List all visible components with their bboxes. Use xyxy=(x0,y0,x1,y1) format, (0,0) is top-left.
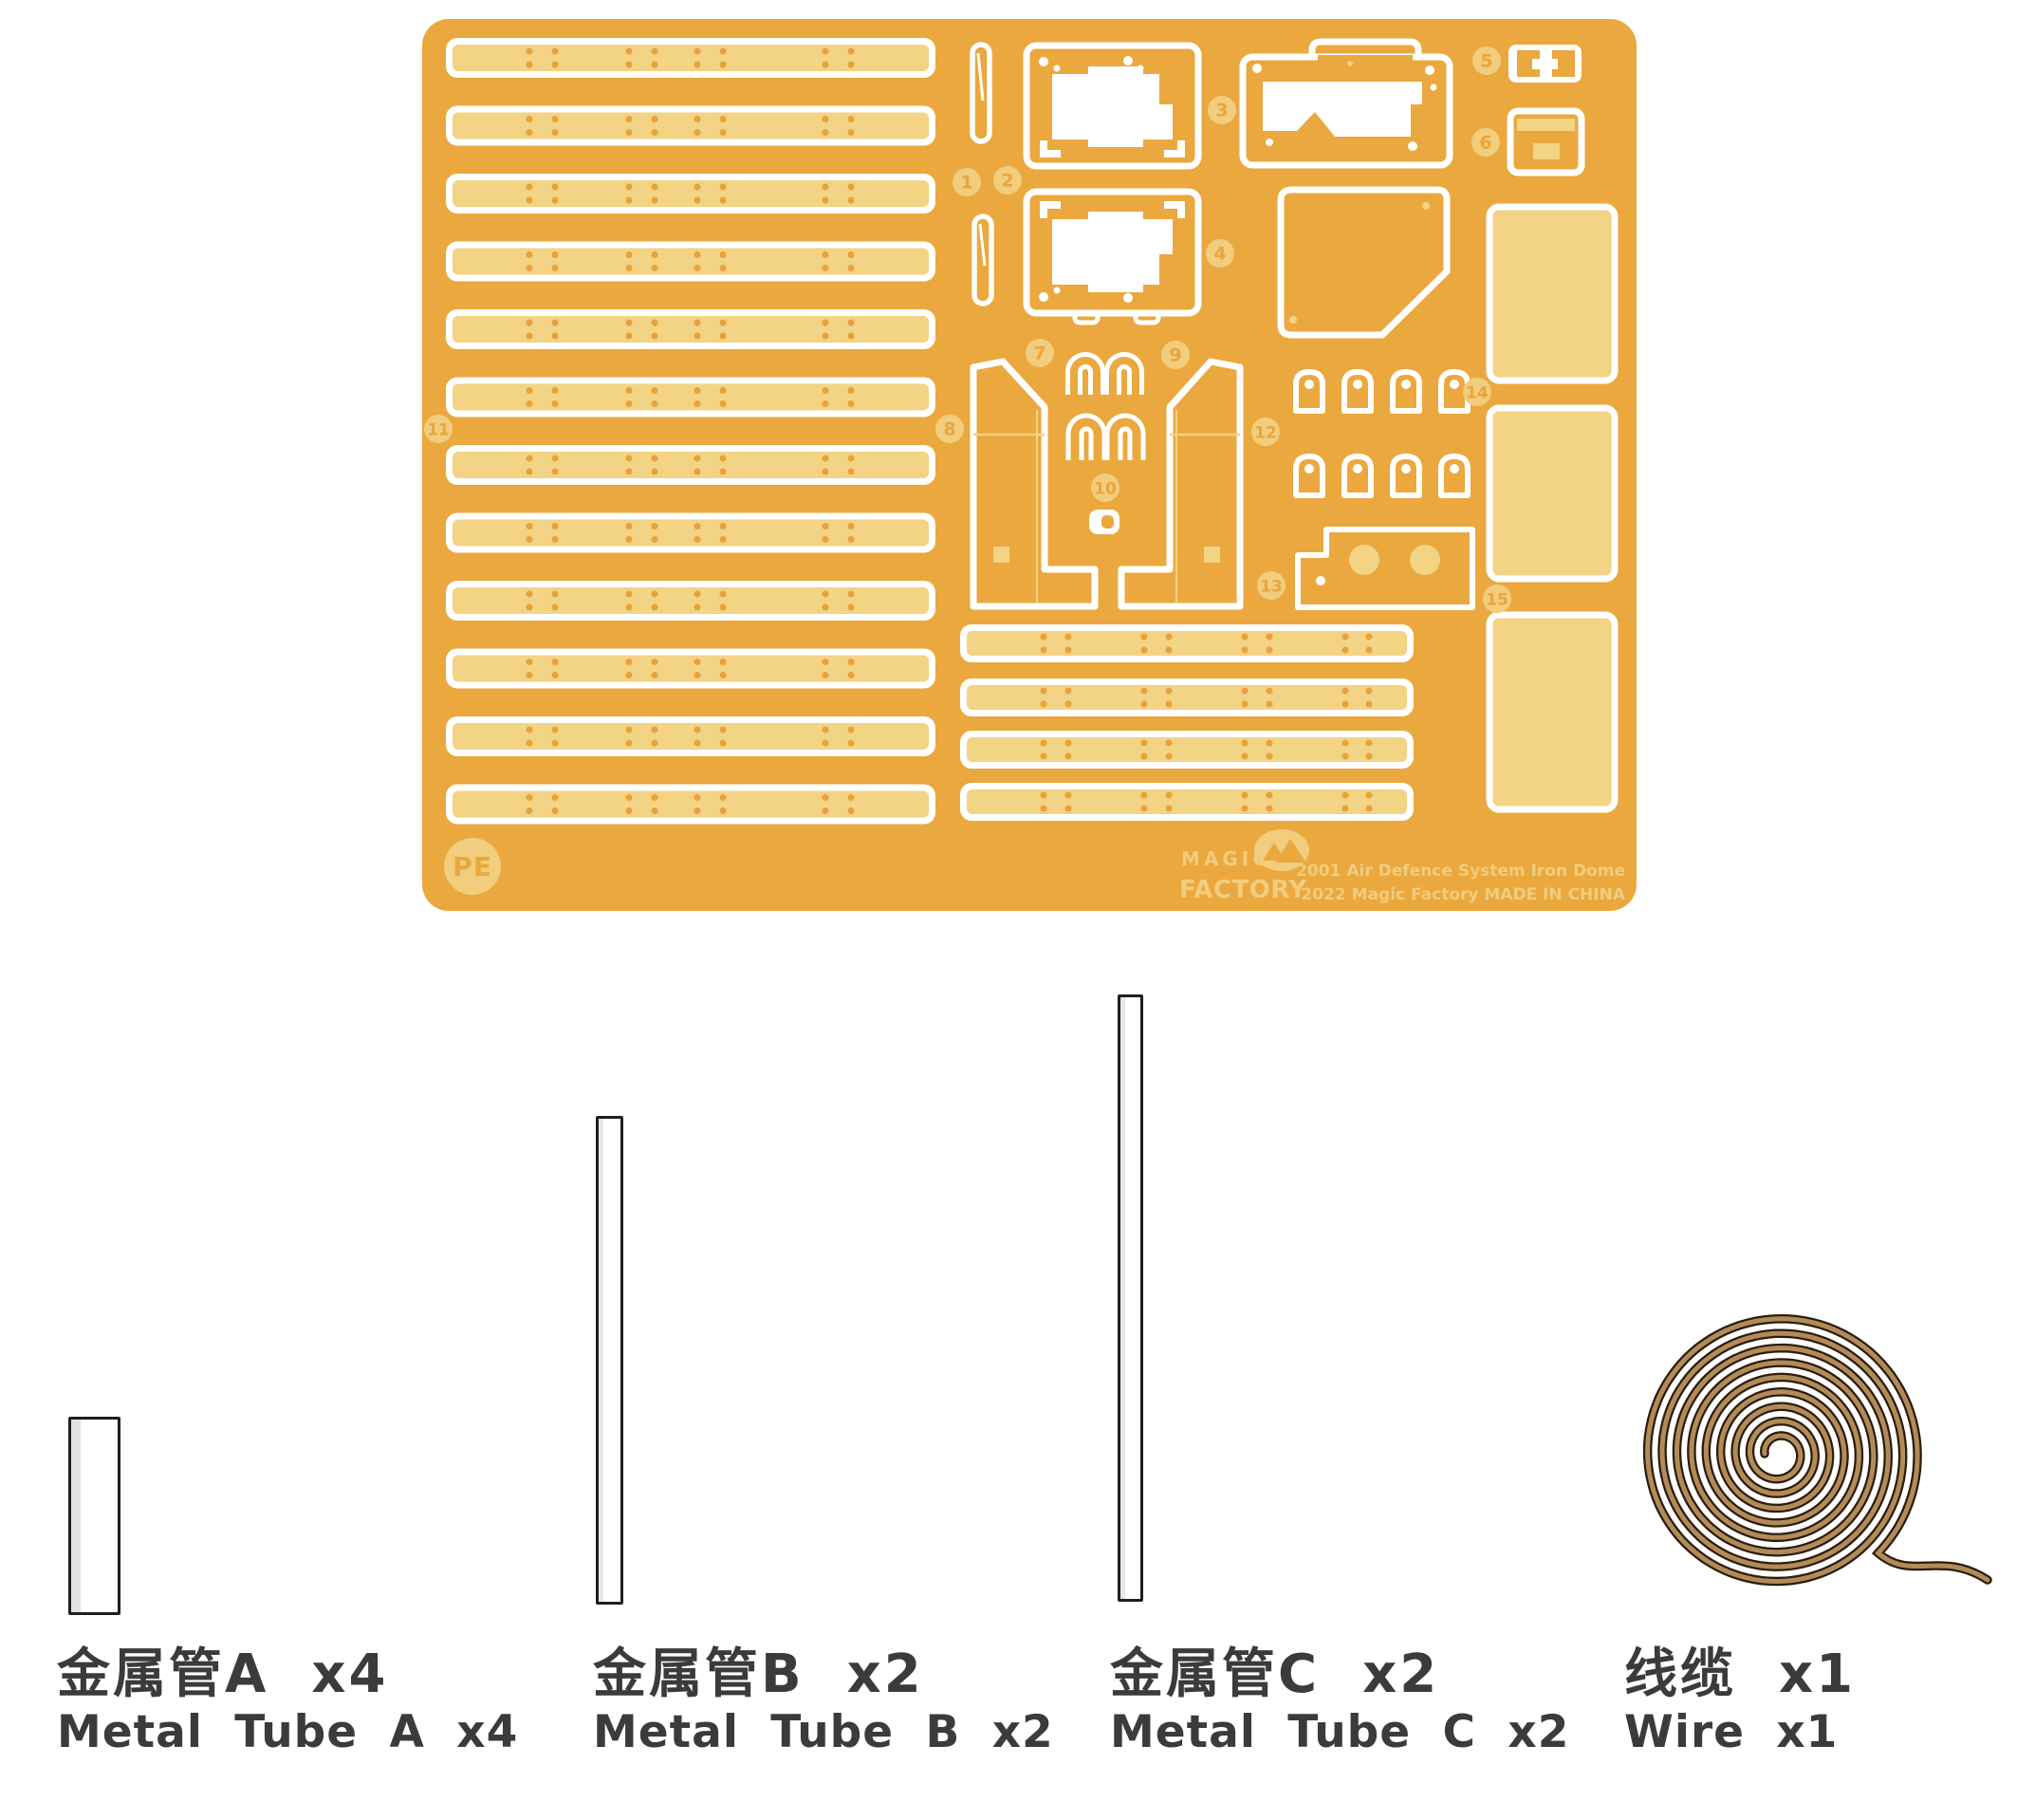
rivet-dot xyxy=(552,265,559,271)
rivet-dot xyxy=(552,400,559,407)
rivet-dot xyxy=(848,469,855,475)
strip-face xyxy=(453,113,929,139)
rivet-dot xyxy=(694,116,701,122)
rivet-dot xyxy=(823,727,829,734)
rivet-dot xyxy=(527,387,533,394)
rivet-dot xyxy=(694,129,701,136)
label-metal-tube-b-cn: 金属管B x2 xyxy=(593,1645,1054,1704)
rivet-dot xyxy=(552,116,559,122)
metal-tube-b xyxy=(596,1116,623,1605)
rivet-dot xyxy=(720,320,727,326)
rivet-dot xyxy=(1141,634,1148,641)
rivet-dot xyxy=(552,387,559,394)
rivet-dot xyxy=(720,129,727,136)
strip-face xyxy=(453,723,929,750)
part-6-box-plate xyxy=(1510,111,1582,173)
rivet-dot xyxy=(1242,740,1249,747)
label-wire-cn: 线缆 x1 xyxy=(1624,1645,1856,1704)
rivet-dot xyxy=(694,591,701,598)
rivet-dot xyxy=(552,659,559,665)
pe-fret-sheet: PE MAGIC FACTORY 2001 Air Defence System… xyxy=(422,19,1637,911)
strip-face xyxy=(967,789,1407,814)
label-metal-tube-c-en: Metal Tube C x2 xyxy=(1110,1708,1569,1757)
rivet-dot xyxy=(1242,792,1249,799)
rivet-dot xyxy=(823,523,829,529)
rivet-dot xyxy=(694,469,701,475)
strip-face xyxy=(967,737,1407,762)
tombstone-clip xyxy=(1393,372,1419,411)
part-number-text: 1 xyxy=(960,173,972,194)
rivet-dot xyxy=(720,740,727,747)
rivet-dot xyxy=(626,591,633,598)
rivet-dot xyxy=(848,400,855,407)
rivet-dot xyxy=(1141,806,1148,812)
rivet-dot xyxy=(720,265,727,271)
rivet-dot xyxy=(1267,753,1273,760)
rivet-dot xyxy=(527,116,533,122)
clip-hole xyxy=(1353,380,1362,389)
rivet-dot xyxy=(1342,740,1349,747)
rivet-dot xyxy=(848,659,855,665)
rivet-dot xyxy=(1065,647,1072,654)
rivet-dot xyxy=(626,740,633,747)
rivet-dot xyxy=(720,604,727,611)
large-panel-2 xyxy=(1489,408,1615,579)
strip-face xyxy=(967,685,1407,710)
rivet-dot xyxy=(626,265,633,271)
fret-info-line2: 2022 Magic Factory MADE IN CHINA xyxy=(1301,885,1625,904)
rivet-dot xyxy=(848,523,855,529)
rivet-dot xyxy=(720,523,727,529)
rivet-dot xyxy=(652,265,658,271)
rivet-dot xyxy=(694,62,701,68)
rivet-dot xyxy=(848,62,855,68)
rivet-dot xyxy=(1141,688,1148,695)
rivet-dot xyxy=(652,659,658,665)
strip-face xyxy=(453,249,929,275)
rivet-dot xyxy=(848,333,855,340)
rivet-dot xyxy=(694,808,701,814)
part-3b-bracket-plate xyxy=(1243,42,1450,165)
rivet-dot xyxy=(1342,792,1349,799)
rivet-dot xyxy=(823,197,829,204)
rivet-dot xyxy=(652,672,658,678)
part-number-text: 12 xyxy=(1254,424,1277,443)
rivet-dot xyxy=(1041,647,1047,654)
rivet-dot xyxy=(652,387,658,394)
rivet-dot xyxy=(694,523,701,529)
rivet-dot xyxy=(694,740,701,747)
rivet-dot xyxy=(694,184,701,191)
rivet-dot xyxy=(527,48,533,55)
rivet-dot xyxy=(848,129,855,136)
rivet-dot xyxy=(694,400,701,407)
large-panels xyxy=(1489,207,1615,809)
rivet-dot xyxy=(1041,701,1047,708)
rivet-dot xyxy=(1267,634,1273,641)
rivet-dot xyxy=(1041,740,1047,747)
rivet-dot xyxy=(652,197,658,204)
rivet-dot xyxy=(652,523,658,529)
rivet-dot xyxy=(552,591,559,598)
brand-factory: FACTORY xyxy=(1179,876,1307,904)
rivet-dot xyxy=(1366,740,1373,747)
rivet-dot xyxy=(652,794,658,801)
rivet-dot xyxy=(552,333,559,340)
rivet-dot xyxy=(1041,753,1047,760)
rivet-dot xyxy=(1366,701,1373,708)
strip-face xyxy=(453,587,929,614)
rivet-dot xyxy=(1041,792,1047,799)
rivet-dot xyxy=(552,184,559,191)
rivet-dot xyxy=(823,536,829,543)
rivet-dot xyxy=(1267,647,1273,654)
rivet-dot xyxy=(694,727,701,734)
label-metal-tube-a: 金属管A x4 Metal Tube A x4 xyxy=(57,1645,518,1757)
rivet-dot xyxy=(1065,753,1072,760)
clip-hole xyxy=(1450,464,1459,474)
rivet-dot xyxy=(1166,740,1173,747)
rivet-dot xyxy=(1065,701,1072,708)
part-number-text: 2 xyxy=(1001,171,1013,192)
rivet-dot xyxy=(720,48,727,55)
rivet-dot xyxy=(652,727,658,734)
rivet-dot xyxy=(652,48,658,55)
part-4-bracket-plate xyxy=(1027,192,1198,323)
rivet-dot xyxy=(527,333,533,340)
part-2-blade xyxy=(974,216,991,304)
rivet-dot xyxy=(626,129,633,136)
rivet-dot xyxy=(1065,688,1072,695)
rivet-dot xyxy=(652,116,658,122)
rivet-dot xyxy=(626,794,633,801)
strip-face xyxy=(453,656,929,682)
rivet-dot xyxy=(1267,792,1273,799)
rivet-dot xyxy=(1366,806,1373,812)
rivet-dot xyxy=(694,333,701,340)
rivet-dot xyxy=(1065,792,1072,799)
part-number-text: 6 xyxy=(1479,133,1491,154)
rivet-dot xyxy=(1166,806,1173,812)
instruction-page: PE MAGIC FACTORY 2001 Air Defence System… xyxy=(0,0,2035,1820)
rivet-dot xyxy=(848,727,855,734)
clip-hole xyxy=(1401,464,1411,474)
rivet-dot xyxy=(652,62,658,68)
rivet-dot xyxy=(1342,701,1349,708)
rivet-dot xyxy=(626,659,633,665)
rivet-dot xyxy=(720,591,727,598)
rivet-dot xyxy=(848,455,855,462)
rivet-dot xyxy=(694,455,701,462)
rivet-dot xyxy=(823,387,829,394)
clip-hole xyxy=(1353,464,1362,474)
rivet-dot xyxy=(720,400,727,407)
part-3-bracket-plate xyxy=(1027,46,1198,166)
rivet-dot xyxy=(1041,806,1047,812)
rivet-dot xyxy=(527,197,533,204)
rivet-dot xyxy=(1342,806,1349,812)
rivet-dot xyxy=(1141,647,1148,654)
rivet-dot xyxy=(1342,753,1349,760)
rivet-dot xyxy=(720,794,727,801)
rivet-dot xyxy=(1366,647,1373,654)
rivet-dot xyxy=(552,727,559,734)
rivet-dot xyxy=(1041,634,1047,641)
rivet-dot xyxy=(1242,806,1249,812)
rivet-dot xyxy=(527,794,533,801)
rivet-dot xyxy=(823,320,829,326)
rivet-dot xyxy=(823,672,829,678)
rivet-dot xyxy=(1366,753,1373,760)
strip-face xyxy=(453,384,929,411)
rivet-dot xyxy=(720,455,727,462)
strip-face xyxy=(453,316,929,343)
rivet-dot xyxy=(527,129,533,136)
rivet-dot xyxy=(652,808,658,814)
rivet-dot xyxy=(652,455,658,462)
rivet-dot xyxy=(552,794,559,801)
rivet-dot xyxy=(652,740,658,747)
wire-coil xyxy=(1613,1295,2035,1608)
rivet-dot xyxy=(552,523,559,529)
strip-face xyxy=(453,520,929,547)
part-number-text: 4 xyxy=(1213,244,1226,265)
rivet-dot xyxy=(694,604,701,611)
part-13-stepped-plate xyxy=(1298,529,1472,607)
rivet-dot xyxy=(626,251,633,258)
rivet-dot xyxy=(527,604,533,611)
rivet-dot xyxy=(720,251,727,258)
rivet-dot xyxy=(823,794,829,801)
rivet-dot xyxy=(1166,647,1173,654)
rivet-dot xyxy=(527,659,533,665)
rivet-dot xyxy=(1141,753,1148,760)
clip-hole xyxy=(1401,380,1411,389)
rivet-dot xyxy=(527,672,533,678)
rivet-dot xyxy=(527,184,533,191)
tombstone-clip xyxy=(1296,456,1323,495)
rivet-dot xyxy=(848,604,855,611)
rivet-dot xyxy=(626,523,633,529)
rivet-dot xyxy=(823,740,829,747)
rivet-dot xyxy=(720,184,727,191)
large-panel-1 xyxy=(1489,207,1615,381)
rivet-dot xyxy=(652,251,658,258)
rivet-dot xyxy=(1242,647,1249,654)
rivet-dot xyxy=(1242,701,1249,708)
clip-hole xyxy=(1450,380,1459,389)
rivet-dot xyxy=(1267,806,1273,812)
label-metal-tube-b-en: Metal Tube B x2 xyxy=(593,1708,1054,1757)
rivet-dot xyxy=(1065,634,1072,641)
rivet-dot xyxy=(848,320,855,326)
strip-face xyxy=(453,180,929,207)
rivet-dot xyxy=(823,265,829,271)
rivet-dot xyxy=(552,62,559,68)
rivet-dot xyxy=(1242,688,1249,695)
tombstone-clip xyxy=(1393,456,1419,495)
part-number-text: 10 xyxy=(1094,480,1117,499)
rivet-dot xyxy=(1166,753,1173,760)
part-number-text: 9 xyxy=(1169,345,1181,366)
label-metal-tube-c-cn: 金属管C x2 xyxy=(1110,1645,1569,1704)
rivet-dot xyxy=(720,727,727,734)
rivet-dot xyxy=(1065,740,1072,747)
rivet-dot xyxy=(1366,792,1373,799)
rivet-dot xyxy=(1342,688,1349,695)
rivet-dot xyxy=(694,251,701,258)
rivet-dot xyxy=(652,184,658,191)
rivet-dot xyxy=(552,604,559,611)
part-10-bean xyxy=(1089,510,1119,534)
rivet-dot xyxy=(626,333,633,340)
part-number-text: 5 xyxy=(1480,51,1492,72)
rivet-dot xyxy=(1267,688,1273,695)
rivet-dot xyxy=(552,536,559,543)
rivet-dot xyxy=(720,62,727,68)
rivet-dot xyxy=(694,387,701,394)
rivet-dot xyxy=(652,536,658,543)
rivet-dot xyxy=(1267,740,1273,747)
rivet-dot xyxy=(652,591,658,598)
rivet-dot xyxy=(1366,634,1373,641)
rivet-dot xyxy=(552,320,559,326)
strip-face xyxy=(967,631,1407,656)
rivet-dot xyxy=(527,400,533,407)
rivet-dot xyxy=(720,672,727,678)
part-5-clip-pair xyxy=(1508,45,1582,83)
rivet-dot xyxy=(1065,806,1072,812)
rivet-dot xyxy=(527,727,533,734)
label-metal-tube-b: 金属管B x2 Metal Tube B x2 xyxy=(593,1645,1054,1757)
rivet-dot xyxy=(720,387,727,394)
fret-info-line1: 2001 Air Defence System Iron Dome xyxy=(1296,862,1625,881)
part-1-blade xyxy=(972,45,990,141)
rivet-dot xyxy=(652,400,658,407)
rivet-dot xyxy=(626,48,633,55)
rivet-dot xyxy=(626,672,633,678)
rivet-dot xyxy=(527,740,533,747)
rivet-dot xyxy=(626,536,633,543)
rivet-dot xyxy=(552,672,559,678)
rivet-dot xyxy=(527,265,533,271)
part-number-text: 13 xyxy=(1260,578,1283,597)
part-number-text: 8 xyxy=(943,419,955,440)
rivet-dot xyxy=(694,672,701,678)
rivet-dot xyxy=(720,808,727,814)
rivet-dot xyxy=(626,320,633,326)
rivet-dot xyxy=(552,48,559,55)
rivet-dot xyxy=(652,333,658,340)
part-number-text: 14 xyxy=(1466,384,1489,403)
rivet-dot xyxy=(626,184,633,191)
rivet-dot xyxy=(527,469,533,475)
rivet-dot xyxy=(848,794,855,801)
part-number-text: 3 xyxy=(1215,101,1228,121)
rivet-dot xyxy=(552,808,559,814)
rivet-dot xyxy=(552,251,559,258)
rivet-dot xyxy=(823,659,829,665)
pe-badge-label: PE xyxy=(453,851,492,882)
rivet-dot xyxy=(823,251,829,258)
rivet-dot xyxy=(848,536,855,543)
rivet-dot xyxy=(552,455,559,462)
rivet-dot xyxy=(848,197,855,204)
rivet-dot xyxy=(848,387,855,394)
rivet-dot xyxy=(1166,792,1173,799)
rivet-dot xyxy=(848,251,855,258)
rivet-dot xyxy=(848,48,855,55)
rivet-dot xyxy=(823,184,829,191)
rivet-dot xyxy=(652,320,658,326)
rivet-dot xyxy=(694,320,701,326)
rivet-dot xyxy=(527,536,533,543)
rivet-dot xyxy=(1342,647,1349,654)
rivet-dot xyxy=(823,808,829,814)
rivet-dot xyxy=(848,116,855,122)
rivet-dot xyxy=(823,455,829,462)
pe-badge: PE xyxy=(444,838,501,895)
strip-face xyxy=(453,45,929,71)
rivet-dot xyxy=(823,604,829,611)
rivet-dot xyxy=(552,129,559,136)
rivet-dot xyxy=(848,591,855,598)
rivet-dot xyxy=(626,808,633,814)
rivet-dot xyxy=(720,659,727,665)
metal-tube-a xyxy=(68,1417,120,1615)
label-wire: 线缆 x1 Wire x1 xyxy=(1624,1645,1856,1757)
rivet-dot xyxy=(626,197,633,204)
rivet-dot xyxy=(823,469,829,475)
rivet-dot xyxy=(720,116,727,122)
rivet-dot xyxy=(626,604,633,611)
rivet-dot xyxy=(1166,701,1173,708)
rivet-dot xyxy=(626,727,633,734)
rivet-dot xyxy=(626,469,633,475)
rivet-dot xyxy=(823,62,829,68)
rivet-dot xyxy=(1141,740,1148,747)
rivet-dot xyxy=(848,672,855,678)
rivet-dot xyxy=(552,740,559,747)
rivet-dot xyxy=(694,536,701,543)
rivet-dot xyxy=(527,251,533,258)
rivet-dot xyxy=(823,400,829,407)
rivet-dot xyxy=(720,197,727,204)
rivet-dot xyxy=(527,523,533,529)
rivet-dot xyxy=(552,469,559,475)
rivet-dot xyxy=(527,591,533,598)
rivet-dot xyxy=(626,116,633,122)
rivet-dot xyxy=(1141,792,1148,799)
clip-hole xyxy=(1304,464,1314,474)
tombstone-clip xyxy=(1344,372,1371,411)
rivet-dot xyxy=(1166,688,1173,695)
tombstone-clip xyxy=(1296,372,1323,411)
metal-tube-c xyxy=(1118,994,1143,1602)
rivet-dot xyxy=(823,333,829,340)
label-metal-tube-a-en: Metal Tube A x4 xyxy=(57,1708,518,1757)
rivet-dot xyxy=(720,469,727,475)
rivet-dot xyxy=(527,320,533,326)
rivet-dot xyxy=(1242,634,1249,641)
rivet-dot xyxy=(848,740,855,747)
tombstone-clip xyxy=(1344,456,1371,495)
rivet-dot xyxy=(552,197,559,204)
part-number-text: 15 xyxy=(1486,591,1508,610)
rivet-dot xyxy=(626,455,633,462)
tombstone-clip xyxy=(1441,456,1468,495)
label-metal-tube-a-cn: 金属管A x4 xyxy=(57,1645,518,1704)
